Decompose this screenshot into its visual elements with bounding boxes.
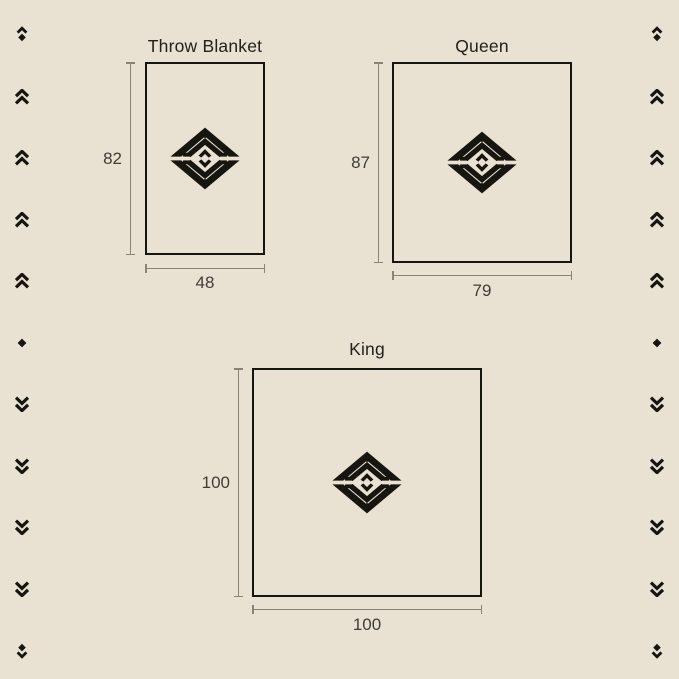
double-chevron-up-icon — [649, 272, 665, 290]
blanket-outline — [252, 368, 482, 597]
diamond-icon — [14, 334, 30, 352]
blanket-outline — [392, 62, 572, 263]
double-chevron-down-icon — [649, 457, 665, 475]
double-chevron-up-icon — [649, 149, 665, 167]
double-chevron-up-icon — [14, 272, 30, 290]
double-chevron-up-icon — [14, 88, 30, 106]
width-dimension-label: 48 — [145, 273, 265, 293]
right-decoration-column — [648, 26, 666, 659]
diamond-over-chevron-down-icon — [14, 641, 30, 659]
double-chevron-down-icon — [14, 580, 30, 598]
section-title: Queen — [392, 36, 572, 57]
blanket-outline — [145, 62, 265, 255]
section-title: King — [252, 339, 482, 360]
brand-emblem-icon — [169, 127, 241, 190]
width-dimension-label: 100 — [252, 615, 482, 635]
section-title: Throw Blanket — [125, 36, 285, 57]
diamond-icon — [649, 334, 665, 352]
diamond-over-chevron-down-icon — [649, 641, 665, 659]
double-chevron-up-icon — [14, 211, 30, 229]
double-chevron-down-icon — [14, 395, 30, 413]
chevron-up-over-diamond-icon — [14, 26, 30, 44]
height-dimension-line — [374, 62, 383, 263]
double-chevron-up-icon — [649, 211, 665, 229]
height-dimension-line — [126, 62, 135, 255]
brand-emblem-icon — [331, 451, 403, 514]
double-chevron-up-icon — [649, 88, 665, 106]
double-chevron-down-icon — [649, 395, 665, 413]
double-chevron-down-icon — [649, 580, 665, 598]
width-dimension-line — [252, 605, 482, 614]
width-dimension-line — [392, 271, 572, 280]
double-chevron-down-icon — [14, 457, 30, 475]
width-dimension-line — [145, 264, 265, 273]
height-dimension-label: 100 — [196, 368, 230, 597]
brand-emblem-icon — [446, 131, 518, 194]
left-decoration-column — [13, 26, 31, 659]
height-dimension-line — [234, 368, 243, 597]
chevron-up-over-diamond-icon — [649, 26, 665, 44]
width-dimension-label: 79 — [392, 281, 572, 301]
double-chevron-down-icon — [649, 518, 665, 536]
height-dimension-label: 82 — [92, 62, 122, 255]
double-chevron-down-icon — [14, 518, 30, 536]
double-chevron-up-icon — [14, 149, 30, 167]
height-dimension-label: 87 — [340, 62, 370, 263]
blanket-size-chart: Throw Blanket 82 48 Queen 87 7 — [0, 0, 679, 679]
